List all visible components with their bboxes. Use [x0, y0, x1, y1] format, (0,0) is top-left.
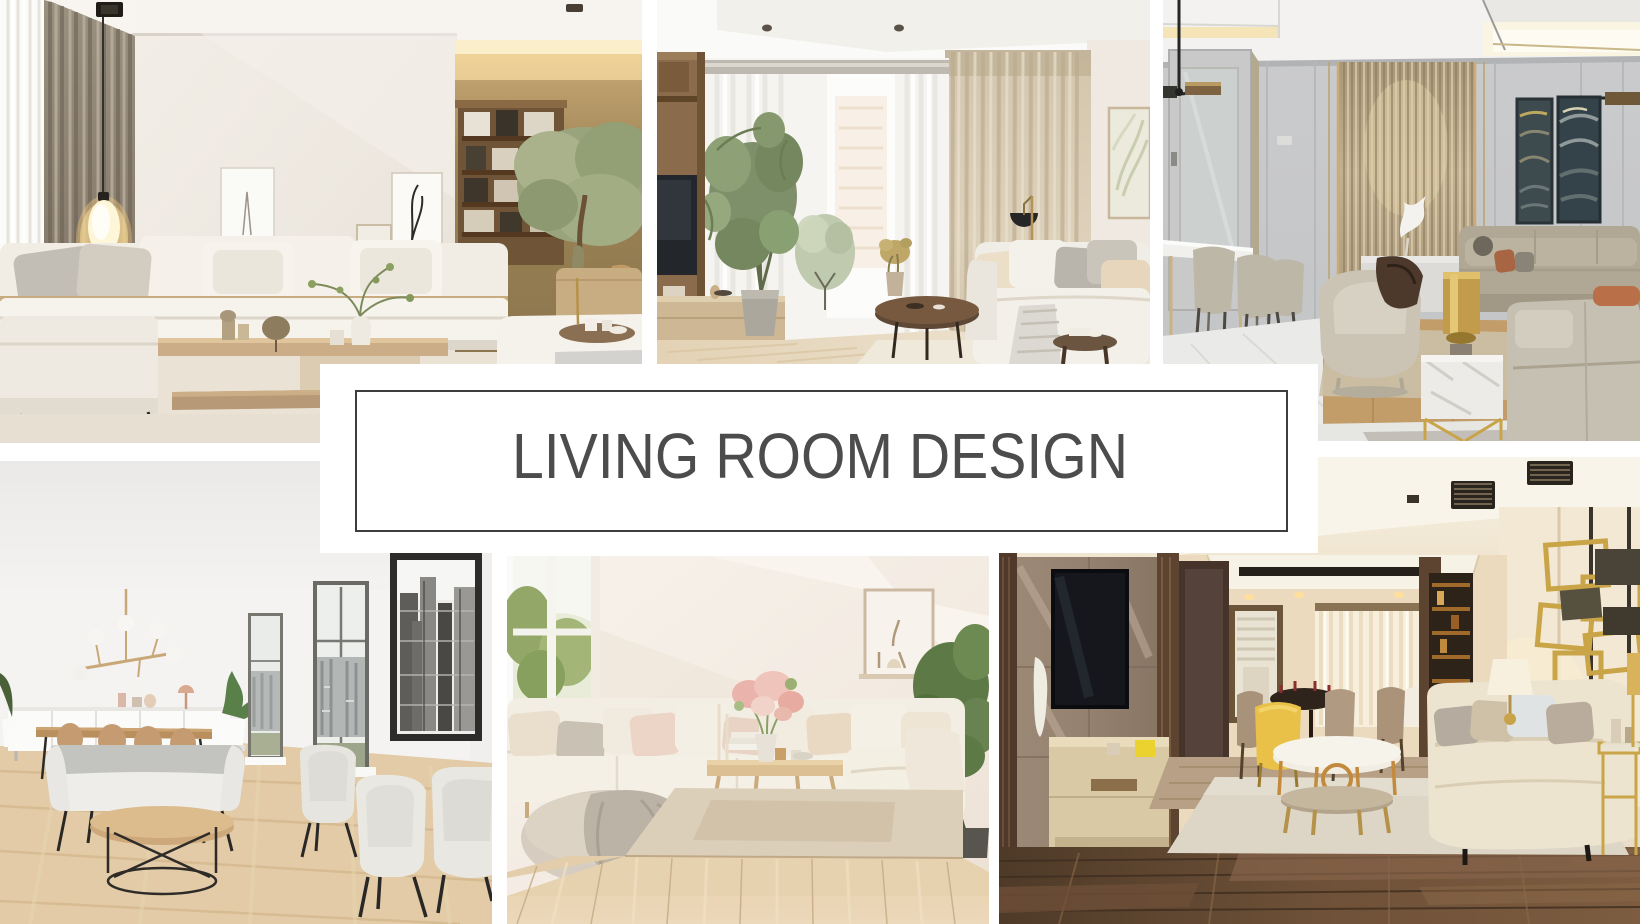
svg-text:LIVING ROOM DESIGN: LIVING ROOM DESIGN — [512, 420, 1128, 492]
